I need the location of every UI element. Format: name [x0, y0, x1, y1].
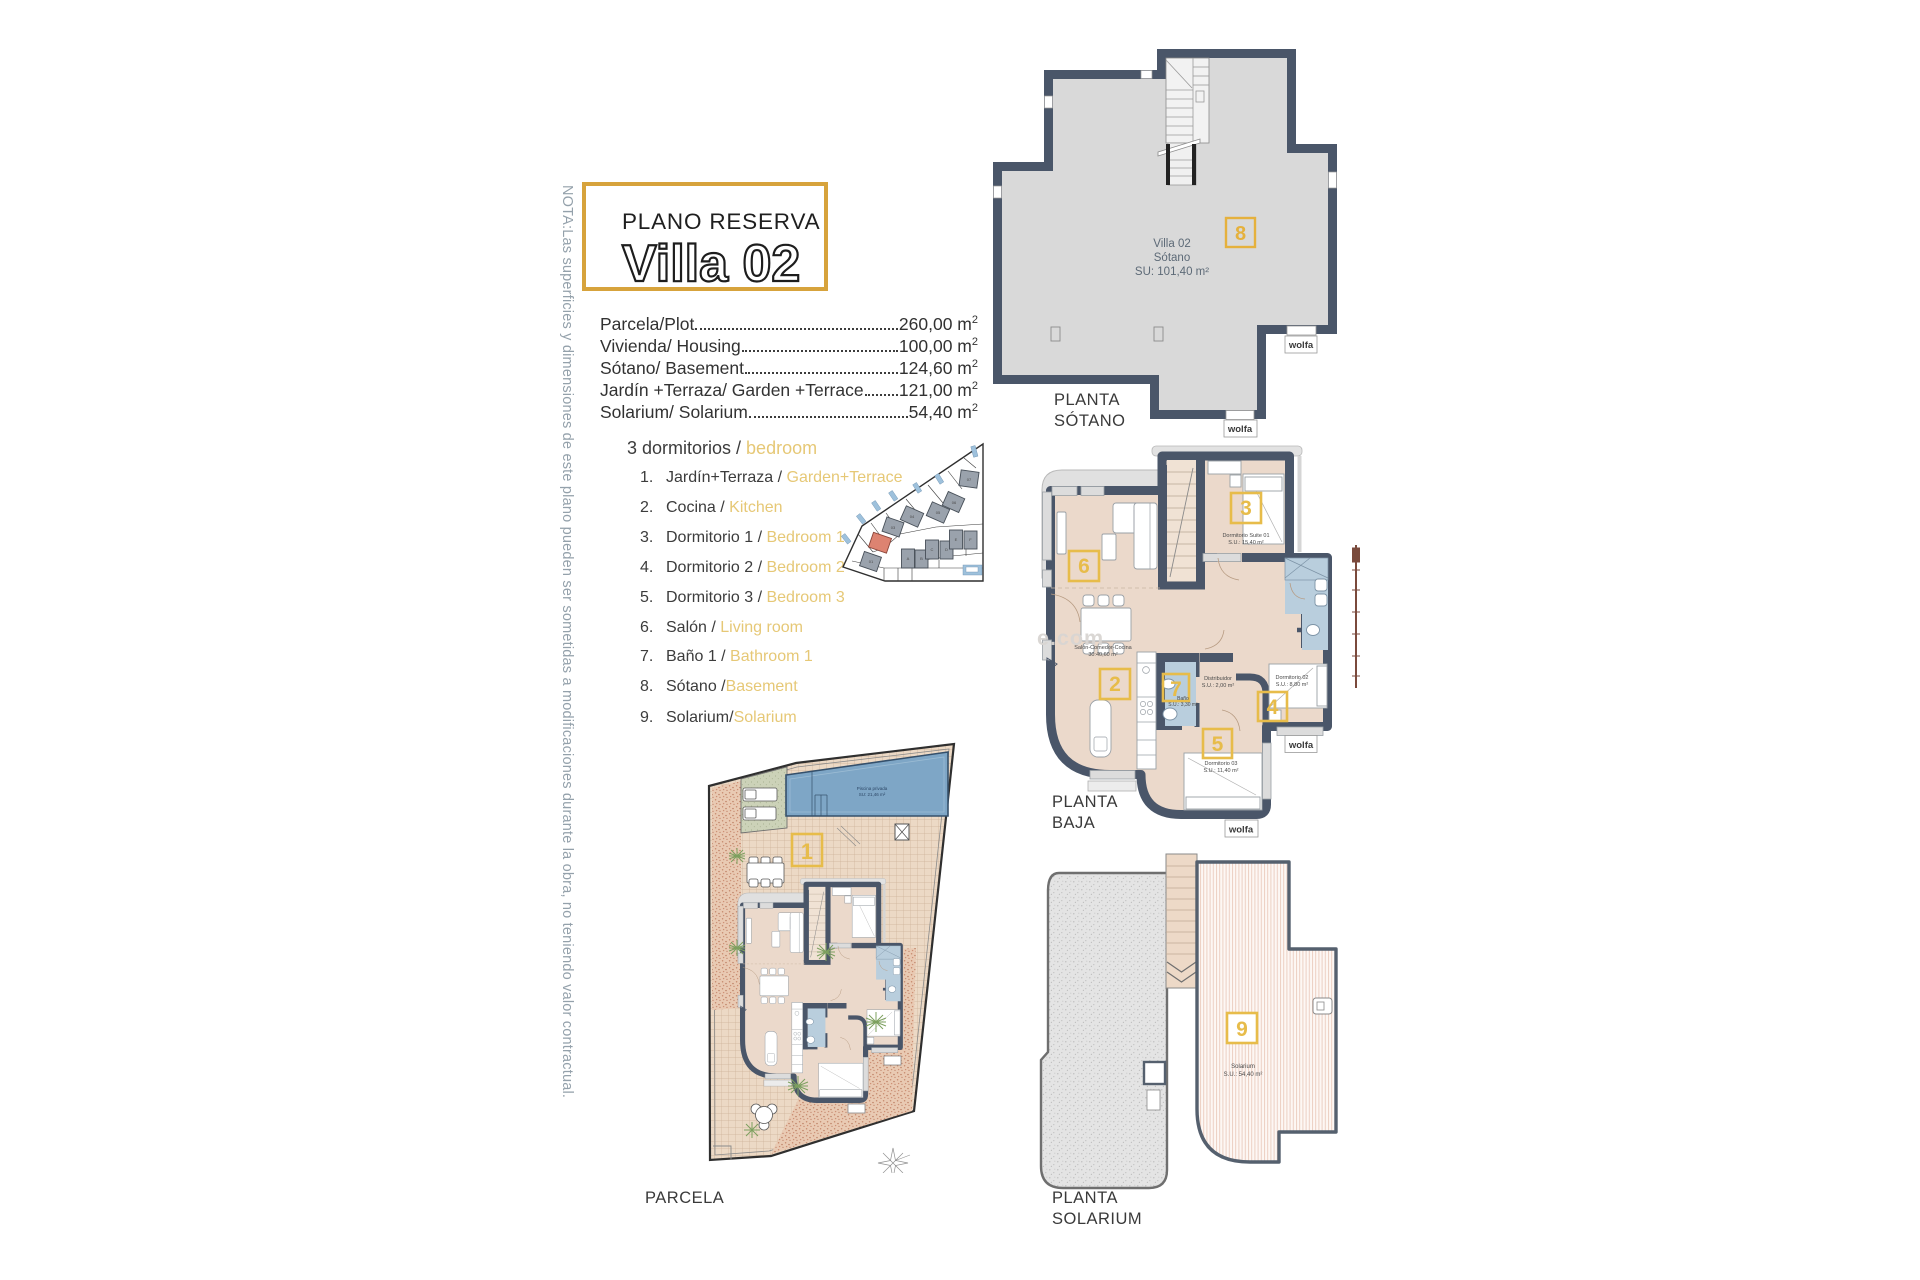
svg-text:wolfa: wolfa	[1288, 740, 1314, 751]
svg-text:S.U.: 11,40 m²: S.U.: 11,40 m²	[1203, 768, 1238, 774]
svg-text:C: C	[931, 547, 934, 552]
svg-text:1: 1	[801, 839, 813, 864]
svg-text:E: E	[955, 537, 958, 542]
svg-text:6: 6	[1078, 555, 1090, 578]
svg-text:wolfa: wolfa	[1227, 424, 1253, 435]
svg-text:5: 5	[1212, 733, 1224, 756]
svg-text:S.U.: 54,40 m²: S.U.: 54,40 m²	[1224, 1072, 1263, 1078]
svg-text:3: 3	[1240, 497, 1252, 520]
svg-text:D: D	[945, 547, 948, 552]
svg-text:8: 8	[1235, 223, 1246, 245]
svg-text:9: 9	[1236, 1018, 1248, 1041]
svg-text:S.U.: 2,00 m²: S.U.: 2,00 m²	[1202, 683, 1235, 689]
svg-text:Distribuidor: Distribuidor	[1204, 676, 1232, 682]
svg-text:A: A	[907, 556, 910, 561]
svg-text:Piscina privada: Piscina privada	[857, 786, 888, 791]
svg-text:4: 4	[1267, 696, 1279, 719]
svg-text:06: 06	[952, 500, 957, 505]
svg-text:Dormitorio 02: Dormitorio 02	[1275, 675, 1308, 681]
svg-text:Villa 02: Villa 02	[622, 236, 800, 288]
svg-text:B: B	[920, 556, 923, 561]
svg-text:S.U.: 8,80 m²: S.U.: 8,80 m²	[1276, 682, 1309, 688]
svg-text:30:40,60 m²: 30:40,60 m²	[1088, 652, 1118, 658]
svg-text:S.U.: 15,40 m²: S.U.: 15,40 m²	[1228, 540, 1264, 546]
svg-text:Dormitorio 03: Dormitorio 03	[1204, 761, 1237, 767]
svg-text:wolfa: wolfa	[1288, 340, 1314, 351]
svg-text:SU: 21,46 m²: SU: 21,46 m²	[859, 792, 886, 797]
svg-text:Sótano: Sótano	[1154, 252, 1190, 264]
svg-text:Solarium: Solarium	[1231, 1064, 1255, 1070]
svg-text:04: 04	[910, 514, 915, 519]
svg-text:07: 07	[967, 477, 972, 482]
svg-text:wolfa: wolfa	[1228, 825, 1254, 836]
svg-text:Villa 02: Villa 02	[1153, 238, 1191, 250]
svg-text:Dormitorio Suite 01: Dormitorio Suite 01	[1222, 533, 1269, 539]
svg-text:S.U.: 3,30 m²: S.U.: 3,30 m²	[1168, 702, 1198, 708]
svg-text:05: 05	[936, 510, 941, 515]
svg-text:SU: 101,40 m²: SU: 101,40 m²	[1135, 266, 1209, 278]
svg-text:03: 03	[891, 525, 896, 530]
svg-text:2: 2	[1109, 673, 1121, 696]
svg-text:01: 01	[869, 559, 874, 564]
